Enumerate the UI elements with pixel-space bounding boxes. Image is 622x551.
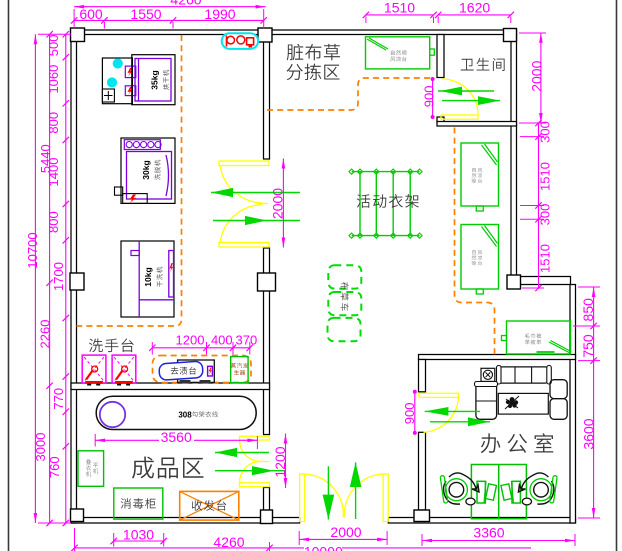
svg-text:600: 600 — [79, 6, 103, 22]
svg-text:300: 300 — [538, 204, 553, 226]
svg-text:10000: 10000 — [304, 544, 343, 551]
svg-text:30kg: 30kg — [141, 160, 151, 179]
svg-text:10700: 10700 — [25, 232, 40, 268]
svg-text:300: 300 — [538, 121, 553, 143]
svg-text:4260: 4260 — [170, 0, 201, 8]
svg-text:1620: 1620 — [459, 0, 490, 16]
svg-text:1200: 1200 — [176, 333, 205, 348]
svg-text:770: 770 — [51, 388, 66, 410]
svg-text:1200: 1200 — [272, 446, 288, 477]
svg-text:1700: 1700 — [51, 262, 66, 291]
svg-text:850: 850 — [580, 298, 596, 322]
svg-text:308: 308 — [178, 410, 192, 419]
svg-text:4260: 4260 — [213, 534, 244, 550]
svg-text:800: 800 — [46, 211, 61, 233]
svg-text:900: 900 — [422, 86, 437, 108]
svg-text:900: 900 — [402, 403, 417, 425]
svg-text:400: 400 — [211, 333, 233, 348]
svg-text:35kg: 35kg — [150, 70, 160, 89]
svg-text:750: 750 — [580, 334, 596, 358]
svg-text:1030: 1030 — [123, 527, 154, 543]
svg-text:3360: 3360 — [473, 525, 504, 541]
svg-text:1510: 1510 — [384, 0, 415, 16]
svg-text:2000: 2000 — [270, 188, 286, 219]
svg-text:1990: 1990 — [204, 6, 235, 22]
svg-text:500: 500 — [46, 35, 61, 57]
svg-text:1060: 1060 — [46, 65, 61, 94]
svg-text:2260: 2260 — [38, 320, 53, 349]
svg-text:5440: 5440 — [38, 144, 53, 173]
svg-text:10kg: 10kg — [143, 267, 153, 286]
svg-text:800: 800 — [46, 112, 61, 134]
svg-text:370: 370 — [236, 333, 258, 348]
svg-text:1550: 1550 — [130, 6, 161, 22]
svg-text:3600: 3600 — [581, 418, 597, 449]
svg-text:1510: 1510 — [538, 244, 553, 273]
svg-text:3560: 3560 — [161, 429, 192, 445]
svg-text:1510: 1510 — [538, 162, 553, 191]
svg-text:2000: 2000 — [529, 60, 545, 91]
svg-text:2000: 2000 — [330, 524, 361, 540]
